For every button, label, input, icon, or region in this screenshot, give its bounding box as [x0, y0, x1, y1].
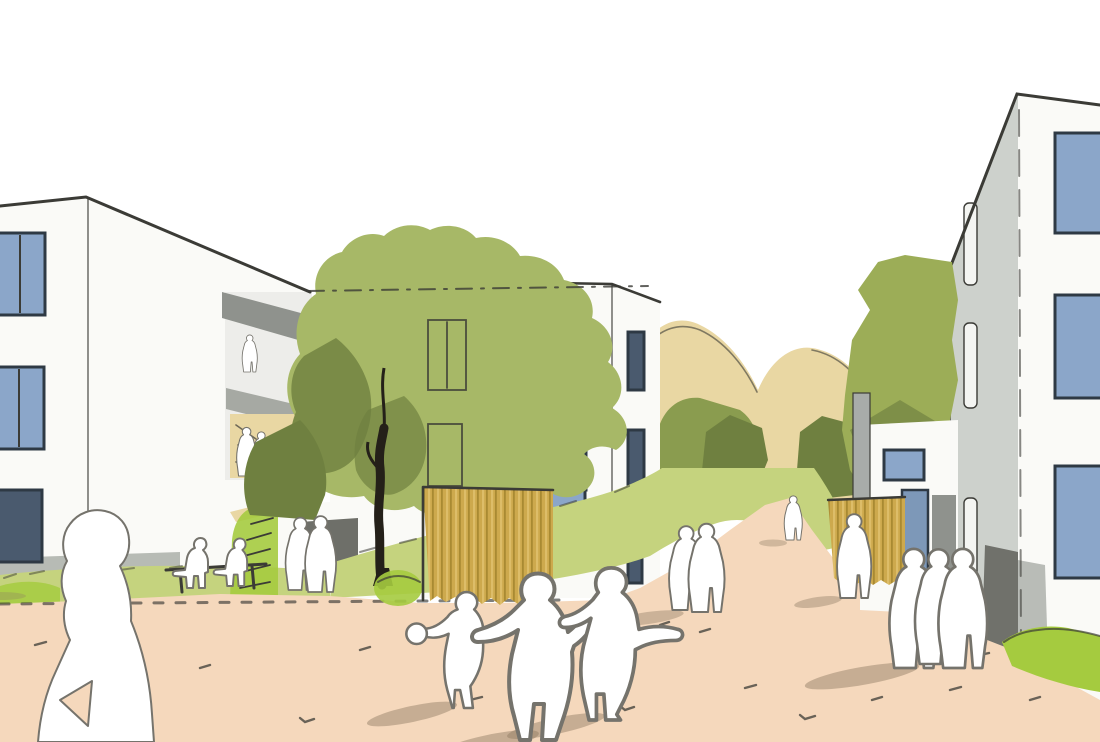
scene-canvas: Architectural concept sketch - residenti…: [0, 0, 1100, 742]
annex-window: [884, 450, 924, 480]
left-building-window: [0, 490, 42, 562]
street-post: [853, 393, 870, 501]
tree-trunk: [379, 428, 384, 585]
right-building-slit-window: [964, 323, 977, 408]
left-building-window: [0, 367, 44, 449]
ball: [406, 624, 426, 644]
right-building-window: [1055, 466, 1100, 578]
architectural-rendering: Architectural concept sketch - residenti…: [0, 0, 1100, 742]
right-building-window: [1055, 133, 1100, 233]
center-building-side-window: [628, 332, 644, 390]
right-building-window: [1055, 295, 1100, 398]
left-building-window: [0, 233, 45, 315]
